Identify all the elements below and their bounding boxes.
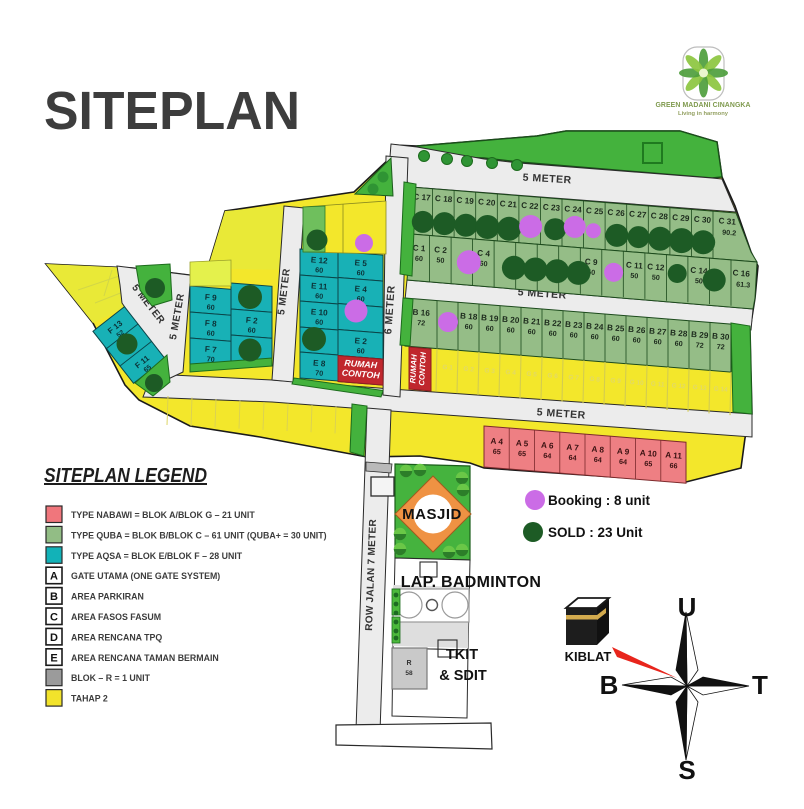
svg-text:C 12: C 12 bbox=[647, 262, 665, 272]
svg-text:T: T bbox=[752, 670, 768, 700]
svg-text:60: 60 bbox=[464, 322, 473, 332]
svg-text:64: 64 bbox=[543, 451, 552, 461]
svg-text:B 26: B 26 bbox=[628, 325, 646, 335]
svg-text:B 16: B 16 bbox=[412, 308, 430, 318]
svg-text:C 25: C 25 bbox=[586, 206, 604, 216]
svg-text:A 8: A 8 bbox=[591, 445, 605, 455]
svg-text:C 30: C 30 bbox=[693, 215, 711, 225]
svg-text:61.3: 61.3 bbox=[736, 279, 751, 289]
svg-text:AREA FASOS FASUM: AREA FASOS FASUM bbox=[71, 612, 161, 622]
svg-text:C 16: C 16 bbox=[732, 268, 750, 278]
svg-text:A 10: A 10 bbox=[639, 448, 657, 458]
svg-text:A 11: A 11 bbox=[665, 450, 683, 460]
svg-text:G 8: G 8 bbox=[589, 376, 600, 384]
svg-text:TKIT: TKIT bbox=[446, 647, 478, 663]
svg-text:50: 50 bbox=[651, 273, 660, 283]
svg-text:G 6: G 6 bbox=[547, 372, 558, 380]
svg-text:C 31: C 31 bbox=[718, 216, 736, 226]
svg-text:C 11: C 11 bbox=[626, 260, 644, 270]
svg-text:60: 60 bbox=[315, 265, 324, 275]
svg-text:TYPE QUBA = BLOK B/BLOK C –: TYPE QUBA = BLOK B/BLOK C – 61 UNIT (QUB… bbox=[71, 530, 327, 540]
svg-text:C 27: C 27 bbox=[629, 209, 647, 219]
svg-text:C 24: C 24 bbox=[564, 204, 582, 214]
svg-text:B: B bbox=[600, 670, 619, 700]
svg-text:G 9: G 9 bbox=[610, 377, 621, 385]
svg-text:G 4: G 4 bbox=[505, 369, 516, 377]
svg-text:AREA PARKIRAN: AREA PARKIRAN bbox=[71, 592, 144, 602]
svg-text:TAHAP 2: TAHAP 2 bbox=[71, 694, 108, 704]
svg-text:G 14: G 14 bbox=[713, 386, 728, 394]
svg-text:KIBLAT: KIBLAT bbox=[565, 649, 612, 664]
svg-text:C 1: C 1 bbox=[412, 243, 426, 253]
svg-text:G 2: G 2 bbox=[463, 366, 474, 374]
svg-text:GATE UTAMA (ONE GATE SYSTEM): GATE UTAMA (ONE GATE SYSTEM) bbox=[71, 571, 220, 581]
svg-text:B 21: B 21 bbox=[523, 316, 541, 326]
svg-text:60: 60 bbox=[569, 330, 578, 340]
svg-text:R: R bbox=[406, 660, 411, 667]
svg-text:E 2: E 2 bbox=[354, 336, 367, 346]
svg-text:C 23: C 23 bbox=[542, 203, 560, 213]
svg-text:60: 60 bbox=[632, 335, 641, 345]
svg-text:CONTOH: CONTOH bbox=[417, 351, 428, 385]
svg-text:C: C bbox=[50, 612, 58, 624]
svg-text:70: 70 bbox=[315, 368, 324, 378]
svg-text:G 7: G 7 bbox=[568, 374, 579, 382]
svg-text:A 9: A 9 bbox=[617, 447, 631, 457]
svg-text:72: 72 bbox=[695, 340, 704, 350]
svg-text:C 29: C 29 bbox=[672, 213, 690, 223]
svg-text:& SDIT: & SDIT bbox=[439, 668, 487, 684]
svg-text:F 9: F 9 bbox=[204, 293, 217, 303]
svg-text:U: U bbox=[678, 592, 697, 622]
svg-text:G 13: G 13 bbox=[692, 384, 707, 392]
svg-text:65: 65 bbox=[644, 459, 653, 469]
svg-text:BLOK – R = 1 UNIT: BLOK – R = 1 UNIT bbox=[71, 673, 151, 683]
svg-text:B 19: B 19 bbox=[481, 313, 499, 323]
svg-text:60: 60 bbox=[315, 291, 324, 301]
svg-text:C 18: C 18 bbox=[435, 194, 453, 204]
svg-text:G 11: G 11 bbox=[650, 381, 665, 389]
svg-text:G 1: G 1 bbox=[442, 364, 453, 372]
svg-text:B 18: B 18 bbox=[460, 311, 478, 321]
svg-text:A: A bbox=[50, 571, 58, 583]
svg-text:E 8: E 8 bbox=[313, 359, 326, 369]
svg-text:S: S bbox=[678, 755, 695, 785]
svg-text:LAP. BADMINTON: LAP. BADMINTON bbox=[401, 574, 542, 591]
svg-text:D: D bbox=[50, 632, 58, 644]
svg-text:C 28: C 28 bbox=[650, 211, 668, 221]
svg-text:SITEPLAN: SITEPLAN bbox=[44, 81, 300, 141]
svg-text:58: 58 bbox=[405, 670, 413, 677]
svg-text:60: 60 bbox=[315, 317, 324, 327]
svg-text:Booking : 8 unit: Booking : 8 unit bbox=[548, 493, 650, 508]
svg-text:B 30: B 30 bbox=[712, 332, 730, 342]
svg-text:E 10: E 10 bbox=[310, 307, 328, 317]
svg-text:F 2: F 2 bbox=[245, 316, 258, 326]
svg-text:64: 64 bbox=[593, 455, 602, 465]
svg-text:B: B bbox=[50, 591, 58, 603]
svg-text:SITEPLAN LEGEND: SITEPLAN LEGEND bbox=[44, 465, 207, 487]
svg-text:F 8: F 8 bbox=[204, 319, 217, 329]
svg-text:TYPE NABAWI = BLOK A/BLOK G: TYPE NABAWI = BLOK A/BLOK G – 21 UNIT bbox=[71, 510, 255, 520]
svg-text:B 27: B 27 bbox=[649, 327, 667, 337]
svg-text:60: 60 bbox=[548, 329, 557, 339]
svg-text:60: 60 bbox=[611, 334, 620, 344]
svg-text:E 12: E 12 bbox=[310, 255, 328, 265]
svg-text:G 12: G 12 bbox=[671, 382, 686, 390]
svg-text:E 4: E 4 bbox=[354, 284, 367, 294]
svg-text:60: 60 bbox=[485, 324, 494, 334]
svg-text:60: 60 bbox=[206, 328, 215, 338]
svg-text:60: 60 bbox=[356, 346, 365, 356]
svg-text:A 6: A 6 bbox=[541, 441, 555, 451]
svg-text:C 19: C 19 bbox=[456, 196, 474, 206]
svg-text:60: 60 bbox=[415, 254, 424, 264]
svg-text:Living in harmony: Living in harmony bbox=[678, 111, 729, 117]
svg-text:72: 72 bbox=[417, 318, 426, 328]
svg-text:C 26: C 26 bbox=[607, 208, 625, 218]
svg-text:G 3: G 3 bbox=[484, 367, 495, 375]
svg-text:72: 72 bbox=[716, 342, 725, 352]
svg-text:B 25: B 25 bbox=[607, 323, 625, 333]
svg-text:C 21: C 21 bbox=[499, 199, 517, 209]
svg-text:60: 60 bbox=[206, 302, 215, 312]
svg-text:AREA RENCANA TPQ: AREA RENCANA TPQ bbox=[71, 632, 162, 642]
svg-text:50: 50 bbox=[695, 276, 704, 286]
svg-text:C 20: C 20 bbox=[478, 197, 496, 207]
svg-text:60: 60 bbox=[506, 325, 515, 335]
svg-text:E 5: E 5 bbox=[354, 258, 367, 268]
svg-text:G 10: G 10 bbox=[629, 379, 644, 387]
svg-text:65: 65 bbox=[518, 449, 527, 459]
svg-text:A 4: A 4 bbox=[490, 437, 504, 447]
svg-text:65: 65 bbox=[492, 447, 501, 457]
svg-text:64: 64 bbox=[619, 457, 628, 467]
svg-text:50: 50 bbox=[436, 255, 445, 265]
svg-text:A 7: A 7 bbox=[566, 443, 580, 453]
svg-text:90.2: 90.2 bbox=[722, 227, 737, 237]
svg-text:64: 64 bbox=[568, 453, 577, 463]
svg-text:GREEN MADANI CINANGKA: GREEN MADANI CINANGKA bbox=[655, 102, 750, 109]
svg-text:B 24: B 24 bbox=[586, 322, 604, 332]
svg-text:C 22: C 22 bbox=[521, 201, 539, 211]
svg-text:G 5: G 5 bbox=[526, 371, 537, 379]
svg-text:E 11: E 11 bbox=[311, 281, 329, 291]
svg-text:TYPE AQSA = BLOK E/BLOK F –: TYPE AQSA = BLOK E/BLOK F – 28 UNIT bbox=[71, 551, 243, 561]
svg-text:B 28: B 28 bbox=[670, 328, 688, 338]
svg-text:60: 60 bbox=[674, 339, 683, 349]
svg-text:50: 50 bbox=[630, 271, 639, 281]
svg-text:60: 60 bbox=[527, 327, 536, 337]
svg-text:F 7: F 7 bbox=[204, 345, 217, 355]
svg-text:B 29: B 29 bbox=[691, 330, 709, 340]
svg-text:B 20: B 20 bbox=[502, 315, 520, 325]
svg-text:66: 66 bbox=[669, 461, 678, 471]
svg-text:AREA RENCANA TAMAN BERMAIN: AREA RENCANA TAMAN BERMAIN bbox=[71, 653, 219, 663]
svg-text:60: 60 bbox=[356, 268, 365, 278]
svg-text:C 2: C 2 bbox=[434, 245, 448, 255]
svg-text:60: 60 bbox=[653, 337, 662, 347]
svg-text:SOLD : 23 Unit: SOLD : 23 Unit bbox=[548, 525, 643, 540]
svg-text:60: 60 bbox=[247, 325, 256, 335]
svg-text:A 5: A 5 bbox=[516, 439, 530, 449]
svg-text:60: 60 bbox=[590, 332, 599, 342]
svg-text:B 23: B 23 bbox=[565, 320, 583, 330]
svg-text:MASJID: MASJID bbox=[402, 506, 462, 523]
svg-text:B 22: B 22 bbox=[544, 318, 562, 328]
svg-text:E: E bbox=[50, 652, 57, 664]
